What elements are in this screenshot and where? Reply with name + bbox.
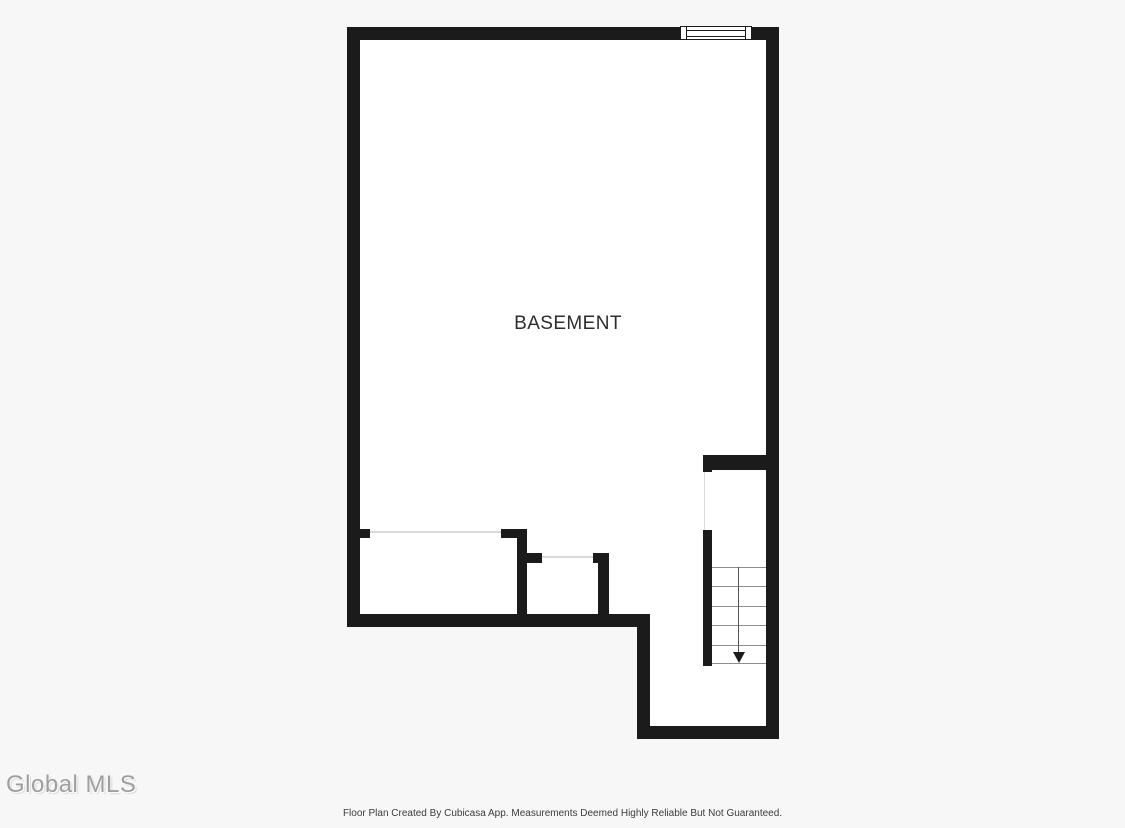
stairs-down-arrow-icon — [733, 652, 745, 663]
floor-plan-image: BASEMENT Global MLS Floor Plan Created B… — [0, 0, 1125, 828]
wall-closet-divider-vertical — [517, 529, 527, 615]
window-symbol — [680, 26, 752, 40]
staircase-treads — [712, 567, 766, 664]
wall-closet1-top-left-stub — [358, 529, 370, 538]
wall-stair-left-upper — [703, 455, 712, 472]
staircase — [712, 567, 766, 664]
watermark-global-mls: Global MLS — [6, 771, 136, 799]
closet1-opening-line — [370, 531, 501, 533]
wall-extension-left — [637, 614, 650, 739]
window-jamb-right — [745, 27, 746, 39]
wall-extension-bottom — [637, 726, 779, 739]
window-pane — [687, 30, 745, 37]
wall-stair-left-lower — [703, 530, 712, 666]
wall-exterior-bottom-main — [347, 614, 650, 627]
staircase-centerline — [738, 567, 739, 655]
room-label: BASEMENT — [458, 313, 678, 335]
wall-exterior-right — [766, 27, 779, 739]
wall-closet2-right-vertical — [598, 553, 609, 615]
stair-doorway-opening-line — [704, 472, 705, 530]
wall-stair-top-stub — [703, 455, 766, 470]
disclaimer-text: Floor Plan Created By Cubicasa App. Meas… — [0, 808, 1125, 819]
wall-closet2-top-left-stub — [527, 553, 542, 563]
closet2-opening-line — [542, 556, 593, 558]
